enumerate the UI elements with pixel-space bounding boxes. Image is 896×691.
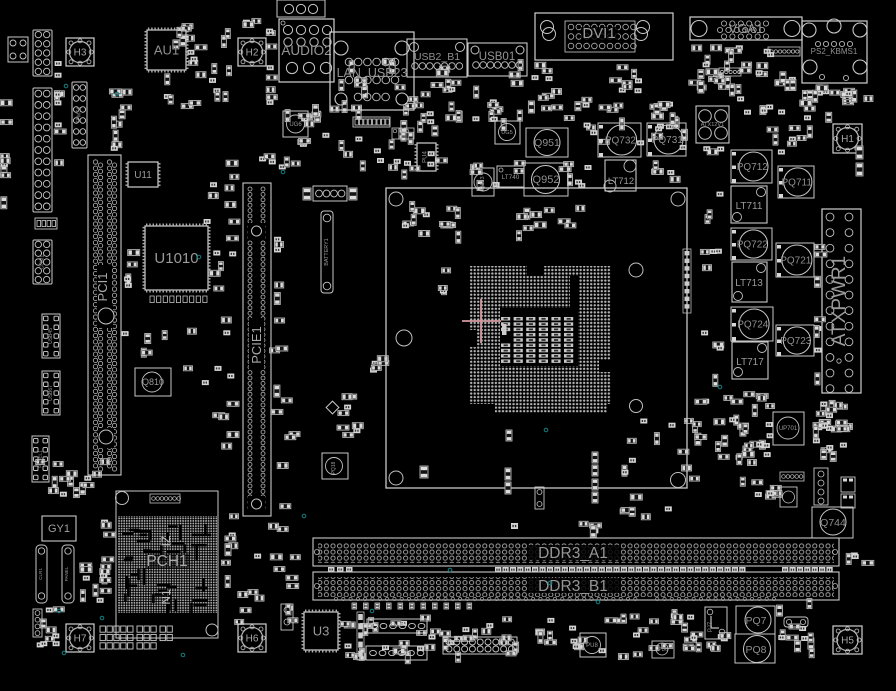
svg-text:PU4: PU4 (423, 151, 429, 163)
svg-text:U1010: U1010 (154, 250, 198, 267)
svg-text:H5: H5 (841, 636, 854, 647)
svg-text:USB2_B1: USB2_B1 (414, 51, 460, 63)
svg-text:BATTERY1: BATTERY1 (324, 238, 330, 265)
svg-text:U3: U3 (313, 624, 330, 639)
svg-text:USB45: USB45 (48, 328, 54, 344)
svg-text:DDR3_B1: DDR3_B1 (538, 578, 608, 595)
svg-text:LAN_USB23: LAN_USB23 (337, 66, 408, 80)
svg-text:PANEL: PANEL (64, 566, 69, 581)
svg-text:DDR3_A1: DDR3_A1 (538, 545, 608, 562)
svg-text:UG5: UG5 (501, 130, 513, 136)
svg-text:PCH1: PCH1 (146, 553, 187, 570)
svg-text:PCI1: PCI1 (95, 273, 110, 302)
svg-text:PQ7: PQ7 (745, 615, 766, 627)
svg-text:PQ731: PQ731 (652, 135, 684, 146)
svg-text:PQ18: PQ18 (331, 461, 337, 474)
svg-text:IZ: IZ (159, 536, 173, 547)
svg-text:PQ722: PQ722 (737, 240, 769, 251)
svg-text:H6: H6 (246, 634, 259, 645)
svg-text:PCIE1: PCIE1 (249, 326, 264, 364)
svg-text:PQ732: PQ732 (605, 136, 637, 147)
svg-text:LT711: LT711 (736, 201, 763, 212)
svg-text:CLR1: CLR1 (38, 568, 43, 580)
svg-text:LT740: LT740 (502, 174, 520, 181)
svg-text:H7: H7 (74, 634, 87, 645)
svg-text:LT717: LT717 (736, 357, 764, 368)
svg-text:LT712: LT712 (608, 176, 634, 187)
svg-text:H1: H1 (841, 134, 854, 145)
svg-text:PU8: PU8 (586, 643, 598, 649)
svg-text:USB67: USB67 (48, 385, 54, 401)
svg-text:AU1: AU1 (154, 43, 179, 58)
svg-text:PQ712: PQ712 (737, 162, 769, 173)
svg-text:UP701: UP701 (779, 426, 798, 432)
svg-text:PS2_KBMS1: PS2_KBMS1 (811, 47, 858, 56)
svg-text:H3: H3 (74, 48, 87, 59)
svg-text:Q952: Q952 (533, 174, 560, 186)
svg-text:UG6: UG6 (289, 122, 302, 128)
svg-text:AUDIO2: AUDIO2 (281, 43, 331, 58)
svg-text:PU6: PU6 (658, 647, 668, 653)
svg-text:PANEL1: PANEL1 (38, 450, 43, 468)
svg-text:USB01: USB01 (479, 51, 515, 63)
svg-text:PQ8: PQ8 (745, 644, 766, 656)
svg-text:COM1: COM1 (40, 255, 46, 270)
svg-text:LT713: LT713 (735, 278, 763, 289)
svg-text:VGA1: VGA1 (729, 21, 764, 36)
svg-text:PQ721: PQ721 (780, 256, 812, 267)
svg-text:PJ7: PJ7 (708, 621, 714, 632)
svg-text:TPMS1: TPMS1 (77, 106, 83, 123)
svg-text:Q744: Q744 (820, 517, 846, 529)
svg-text:ATX12V1: ATX12V1 (701, 122, 725, 128)
svg-text:PQ724: PQ724 (737, 320, 769, 331)
svg-text:Q810: Q810 (142, 377, 164, 387)
svg-text:Q951: Q951 (534, 137, 560, 149)
svg-text:PQ723: PQ723 (780, 336, 812, 347)
svg-text:N1: N1 (159, 589, 173, 605)
svg-text:DVI1: DVI1 (582, 25, 615, 42)
svg-text:H2: H2 (246, 48, 259, 59)
svg-text:GY1: GY1 (48, 523, 70, 535)
svg-text:ATXPWR1: ATXPWR1 (829, 256, 850, 346)
svg-text:U11: U11 (134, 170, 152, 181)
svg-text:PQ711: PQ711 (782, 178, 813, 189)
